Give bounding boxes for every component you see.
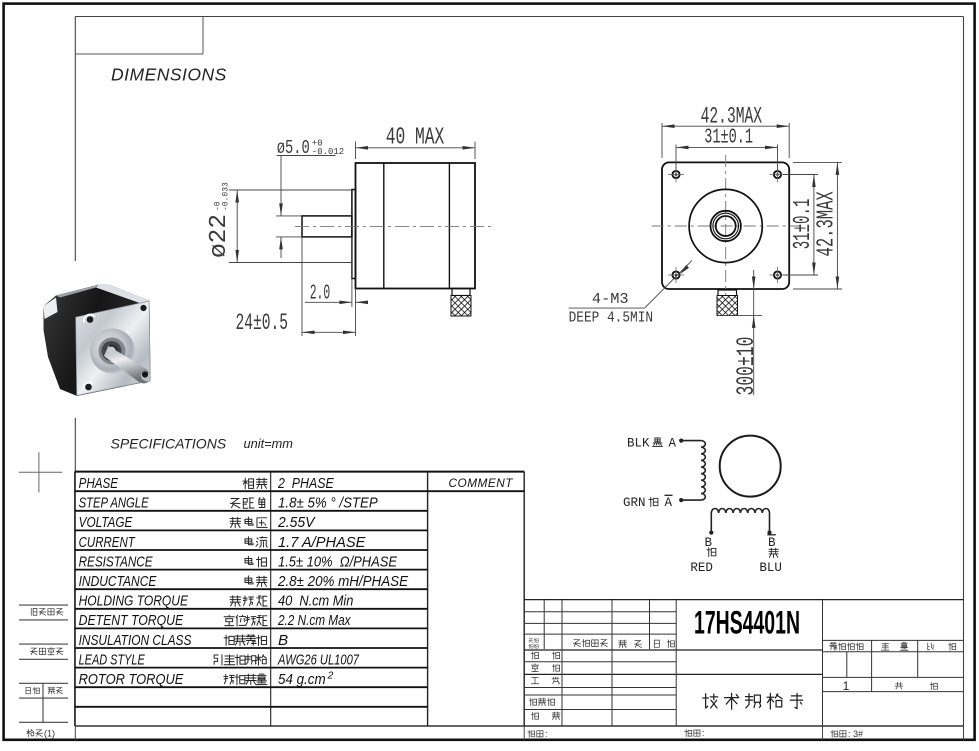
svg-text:A: A [669,437,677,451]
svg-text:B: B [278,632,288,649]
svg-text:2.2 N.cm Max: 2.2 N.cm Max [277,612,351,629]
svg-text:42.3MAX: 42.3MAX [814,191,841,256]
svg-text:31±0.1: 31±0.1 [704,126,753,150]
svg-text:2: 2 [327,670,334,682]
svg-text:unit=mm: unit=mm [244,436,294,451]
svg-text:A: A [665,496,673,510]
svg-text:GRN: GRN [623,496,646,510]
svg-text:40 N.cm Min: 40 N.cm Min [278,593,353,610]
svg-text:300±10: 300±10 [732,337,761,396]
svg-text:24±0.5: 24±0.5 [236,310,289,337]
svg-text:PHASE: PHASE [79,475,119,492]
svg-text:1.5± 10% Ω/PHASE: 1.5± 10% Ω/PHASE [278,553,398,570]
svg-text:INSULATION CLASS: INSULATION CLASS [79,632,192,649]
svg-text:ROTOR TORQUE: ROTOR TORQUE [79,671,185,688]
svg-text:AWG26 UL1007: AWG26 UL1007 [277,651,359,668]
svg-text:: 3#: : 3# [848,729,863,739]
svg-text:DIMENSIONS: DIMENSIONS [111,65,227,85]
svg-text::: : [702,728,705,738]
svg-text:DEEP 4.5MIN: DEEP 4.5MIN [569,311,654,327]
svg-text:DETENT TORQUE: DETENT TORQUE [79,612,184,629]
svg-text:17HS4401N: 17HS4401N [694,605,800,641]
svg-text:1.8± 5% ° /STEP: 1.8± 5% ° /STEP [278,495,379,512]
svg-text:-0.033: -0.033 [222,182,231,211]
svg-text:RESISTANCE: RESISTANCE [79,553,154,570]
svg-text:2.55V: 2.55V [277,514,316,531]
svg-text:LEAD STYLE: LEAD STYLE [79,651,146,668]
svg-text:ø22: ø22 [206,214,233,258]
svg-text:2.0: 2.0 [310,282,331,306]
svg-text:B: B [768,536,776,550]
svg-text:2.8± 20% mH/PHASE: 2.8± 20% mH/PHASE [277,573,409,590]
svg-text:SPECIFICATIONS: SPECIFICATIONS [111,436,227,452]
svg-text:COMMENT: COMMENT [449,476,514,490]
svg-text:54 g.cm: 54 g.cm [278,671,326,688]
svg-text:(1): (1) [44,728,55,738]
svg-text:HOLDING TORQUE: HOLDING TORQUE [79,593,189,610]
svg-text:4-M3: 4-M3 [592,291,629,308]
svg-text::: : [545,729,548,739]
svg-text:STEP ANGLE: STEP ANGLE [79,495,150,512]
svg-text:INDUCTANCE: INDUCTANCE [79,573,157,590]
svg-text:VOLTAGE: VOLTAGE [79,514,133,531]
svg-text:BLU: BLU [759,561,782,575]
svg-text:2 PHASE: 2 PHASE [277,475,334,492]
svg-text:40 MAX: 40 MAX [386,125,445,152]
svg-text:RED: RED [690,561,713,575]
svg-text:CURRENT: CURRENT [79,534,137,551]
svg-text:1: 1 [843,679,850,693]
svg-text:BLK: BLK [627,437,650,451]
svg-text:1.7 A/PHASE: 1.7 A/PHASE [278,534,366,551]
